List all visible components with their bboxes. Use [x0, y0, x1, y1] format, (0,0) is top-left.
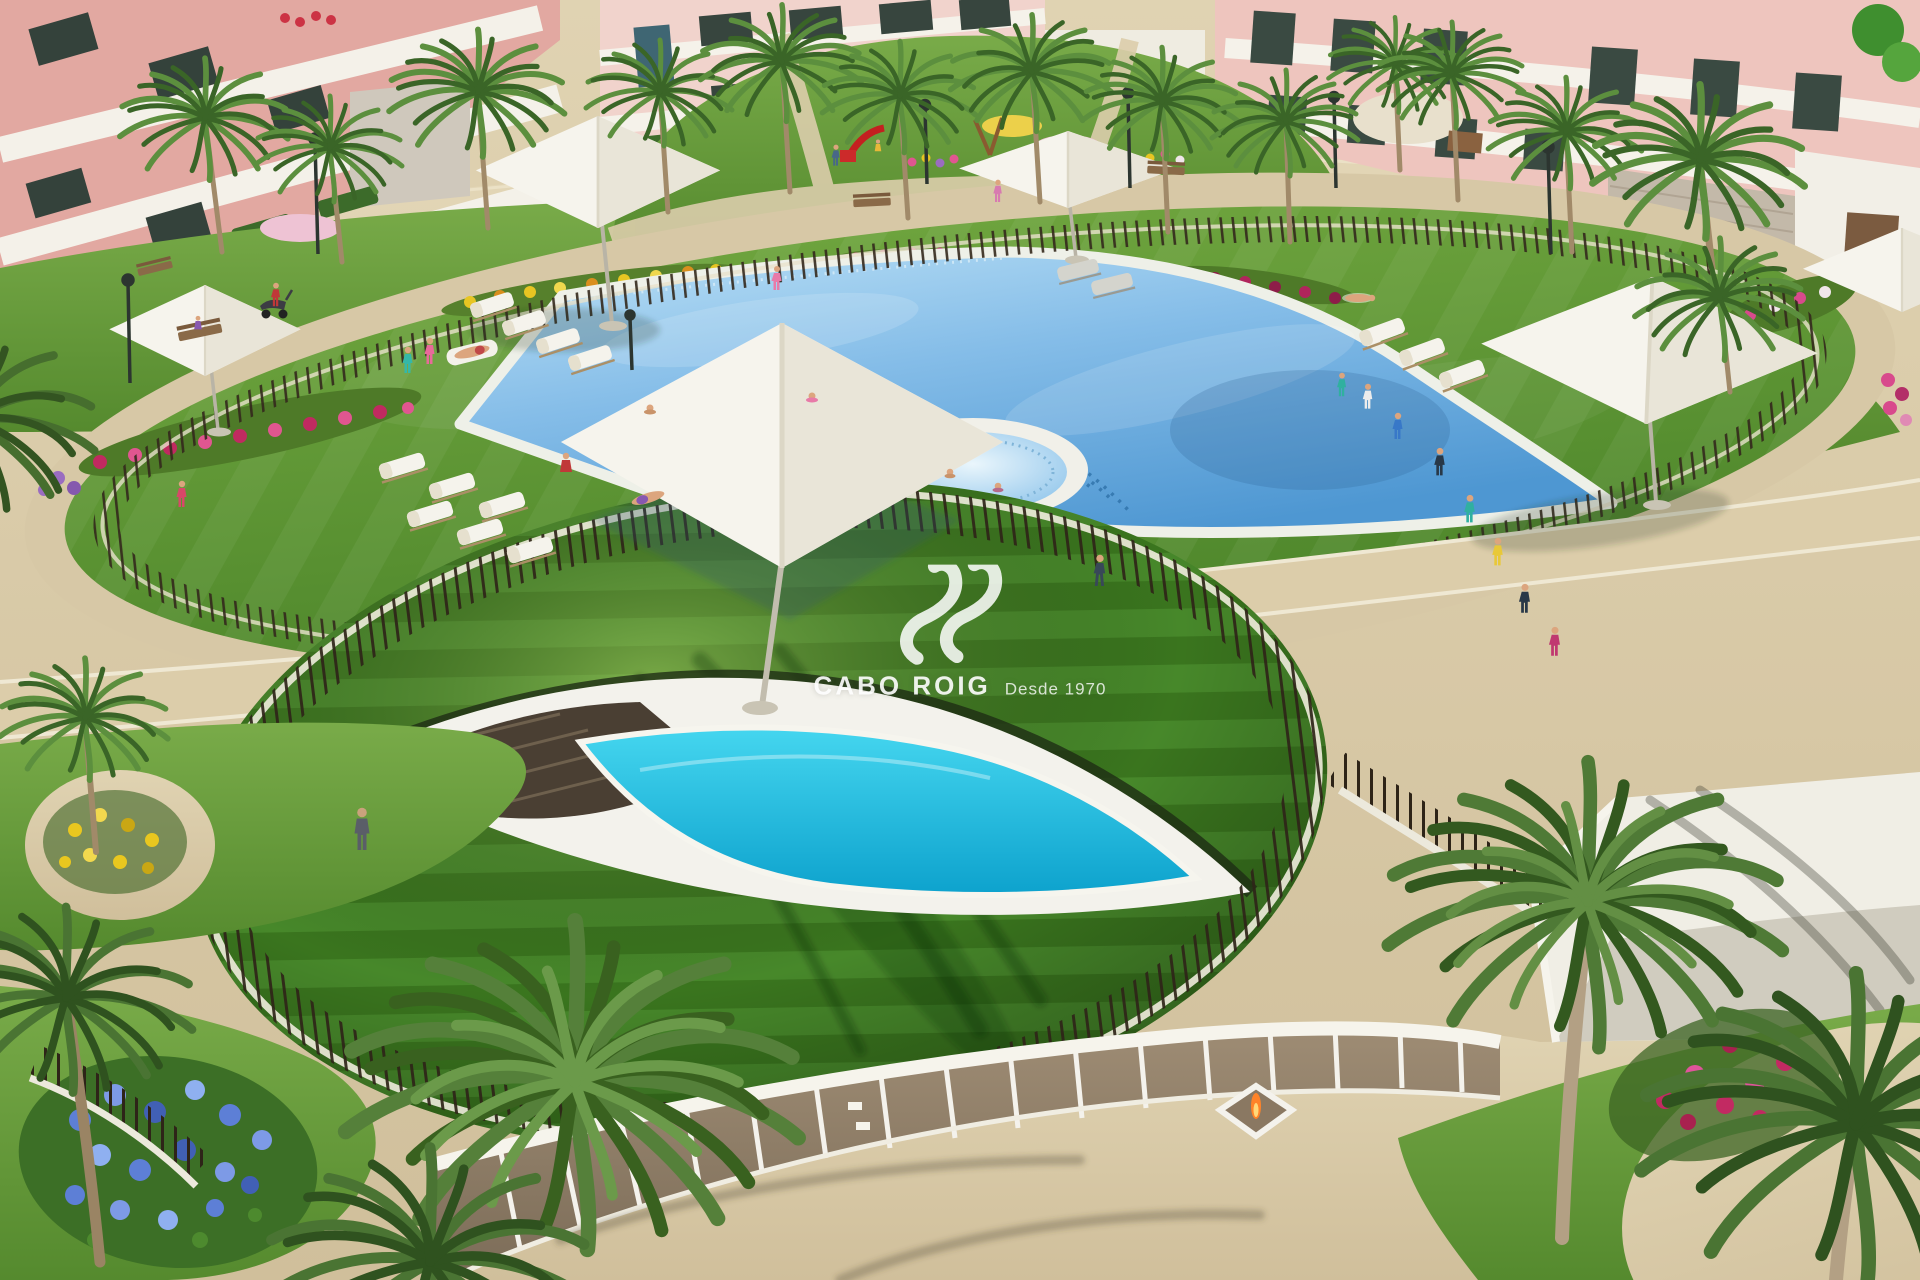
render-canvas [0, 0, 1920, 1280]
terrace-parasol [1353, 92, 1463, 144]
resort-aerial-render: CABO ROIG Desde 1970 [0, 0, 1920, 1280]
flower-circle [260, 214, 340, 242]
flower-bed-yellow-bl [43, 790, 187, 894]
